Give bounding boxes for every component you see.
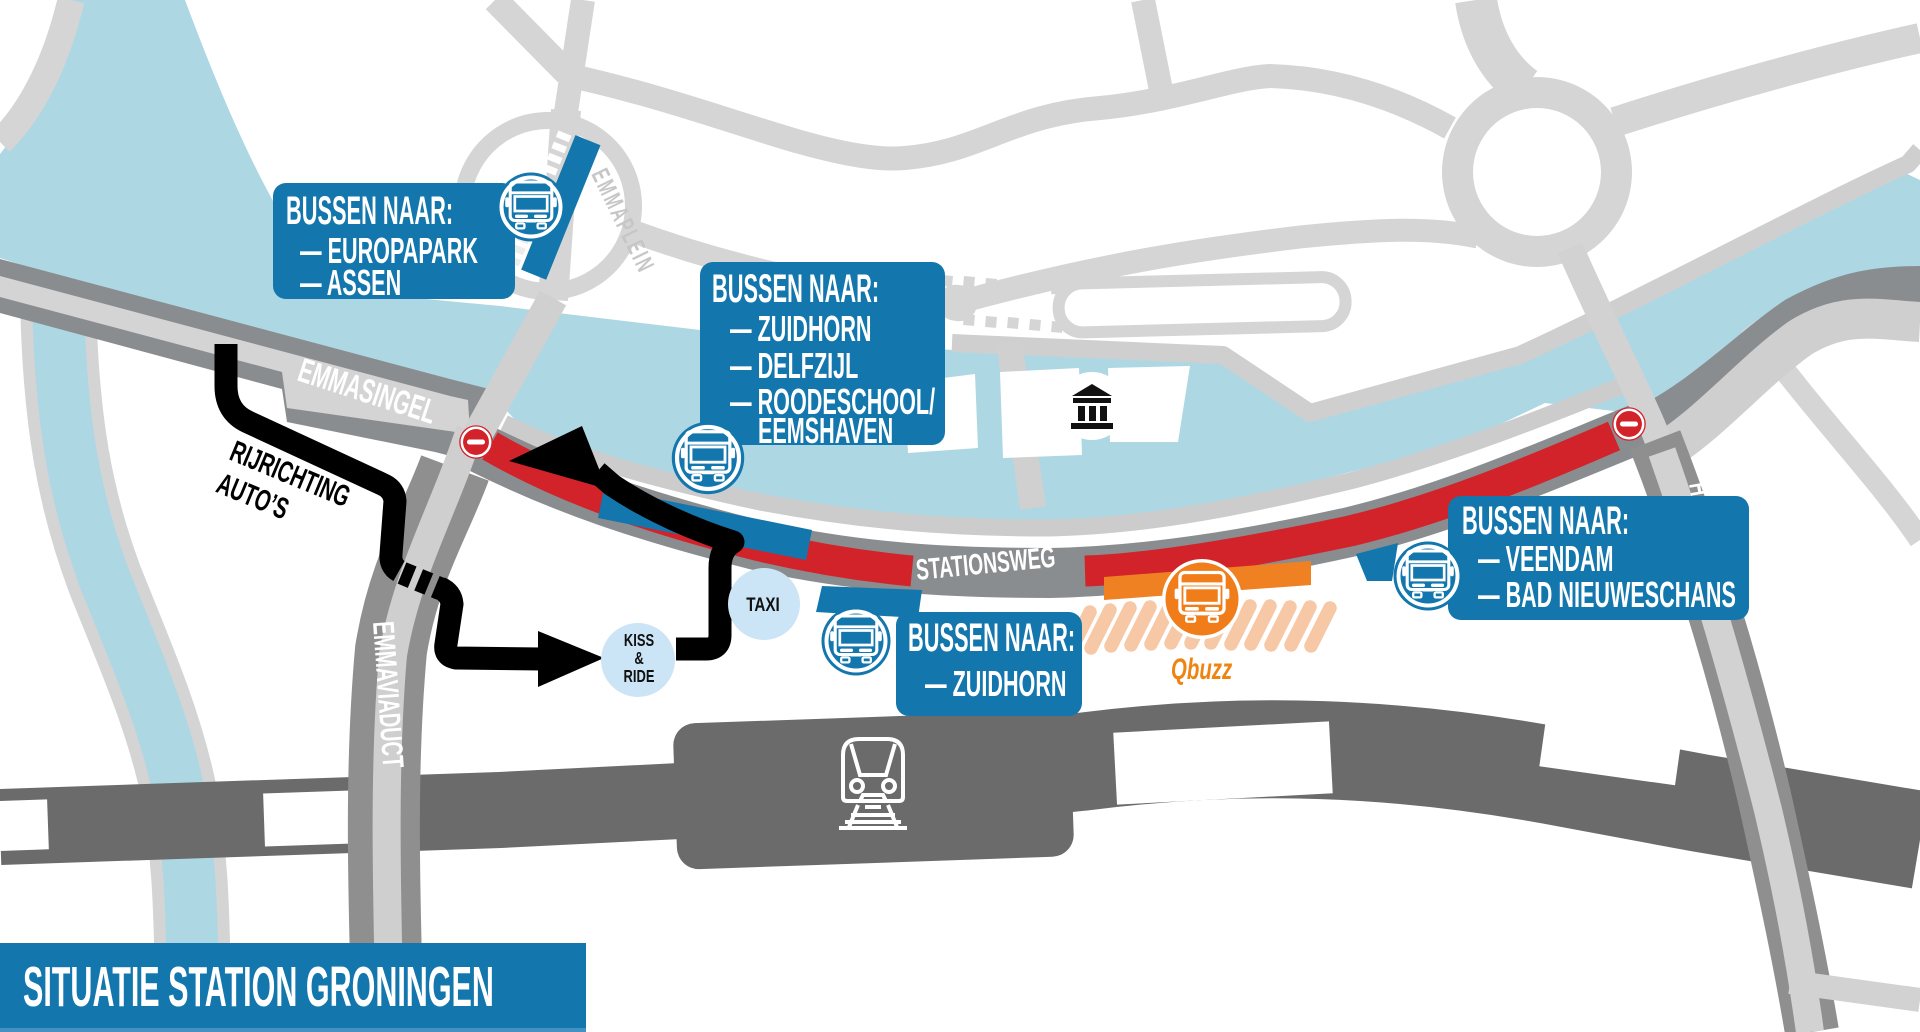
svg-text:— BAD NIEUWESCHANS: — BAD NIEUWESCHANS (1478, 575, 1736, 615)
svg-text:— ASSEN: — ASSEN (300, 263, 401, 303)
svg-text:RIDE: RIDE (624, 667, 655, 686)
svg-text:— DELFZIJL: — DELFZIJL (730, 346, 858, 386)
svg-text:EEMSHAVEN: EEMSHAVEN (758, 411, 893, 451)
svg-text:BUSSEN NAAR:: BUSSEN NAAR: (286, 188, 453, 233)
svg-text:Qbuzz: Qbuzz (1171, 653, 1232, 686)
svg-text:— ZUIDHORN: — ZUIDHORN (730, 309, 872, 349)
svg-text:KISS: KISS (624, 631, 654, 650)
svg-text:&: & (634, 649, 643, 668)
svg-text:— ZUIDHORN: — ZUIDHORN (925, 664, 1067, 704)
svg-text:— VEENDAM: — VEENDAM (1478, 539, 1614, 579)
svg-text:BUSSEN NAAR:: BUSSEN NAAR: (908, 615, 1075, 660)
svg-text:SITUATIE STATION GRONINGEN: SITUATIE STATION GRONINGEN (23, 955, 494, 1019)
svg-text:TAXI: TAXI (746, 593, 779, 615)
svg-text:BUSSEN NAAR:: BUSSEN NAAR: (712, 266, 879, 311)
svg-text:BUSSEN NAAR:: BUSSEN NAAR: (1462, 498, 1629, 543)
